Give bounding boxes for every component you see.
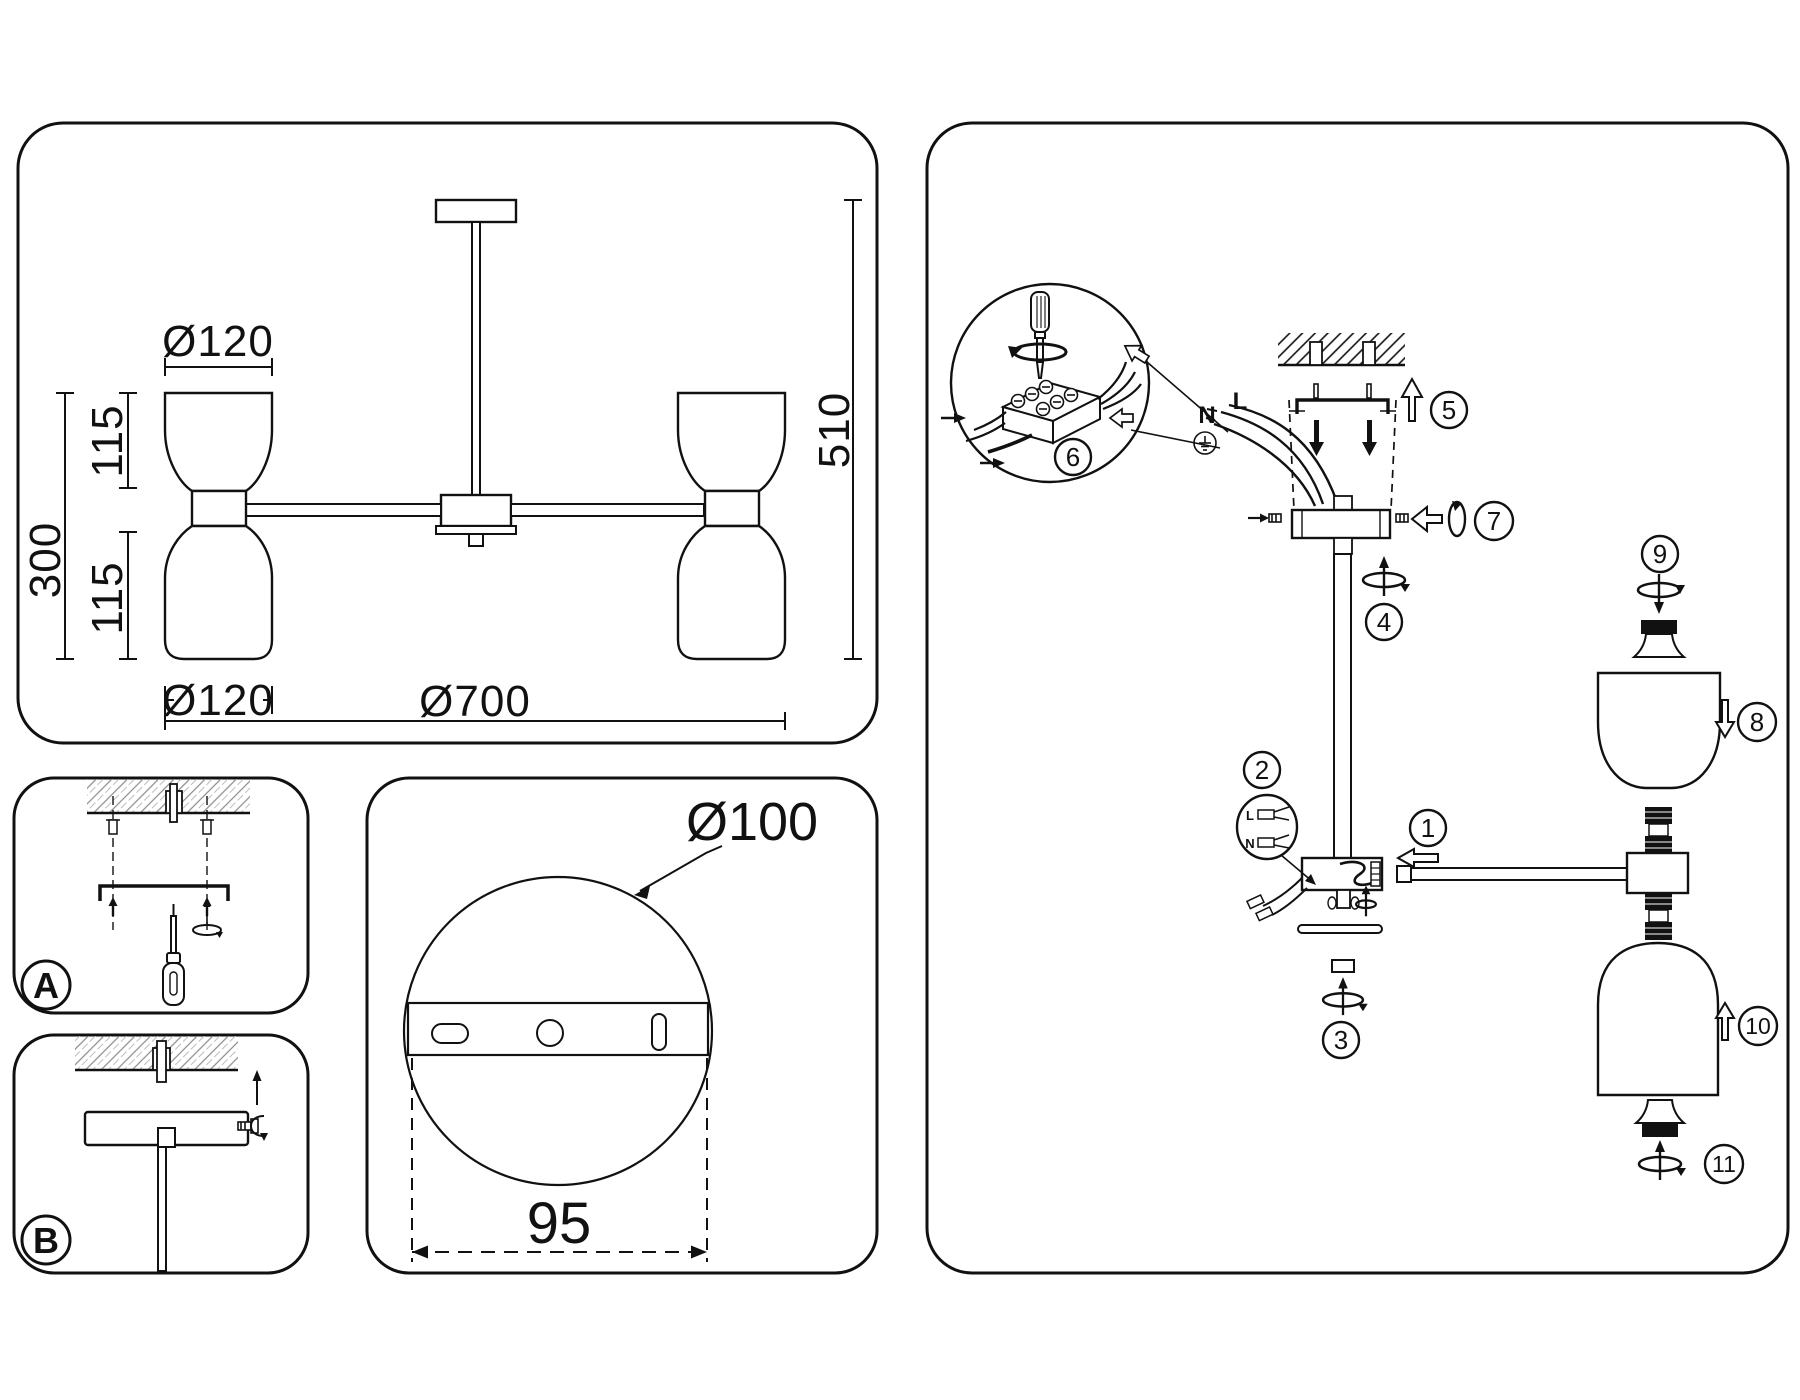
step-5-number: 5 xyxy=(1442,395,1456,425)
wire-neutral-label: N xyxy=(1198,402,1215,429)
central-hub xyxy=(441,495,511,526)
dim-shade-bottom-label: Ø120 xyxy=(162,676,274,725)
threaded-nipple-upper xyxy=(1645,807,1672,853)
step-1-number: 1 xyxy=(1421,813,1435,843)
socket-skirt-upper xyxy=(1634,634,1684,657)
hub-stub xyxy=(1337,890,1350,908)
hub-lip xyxy=(436,526,516,534)
terminal-callout: 6 xyxy=(941,284,1228,482)
mounting-bracket xyxy=(100,886,228,901)
panel-assembly: 6 N L xyxy=(927,123,1788,1273)
connector-live-label: L xyxy=(1246,808,1254,823)
arm-rod xyxy=(1411,868,1627,880)
lock-nut xyxy=(1332,960,1354,972)
socket-skirt-lower xyxy=(1636,1100,1684,1123)
instruction-sheet: Ø120 115 115 300 Ø120 xyxy=(0,0,1800,1400)
rotate-icon-step9 xyxy=(1638,574,1685,614)
arm-right xyxy=(511,504,704,516)
lamp-right xyxy=(678,393,785,659)
bracket-screws xyxy=(109,897,212,916)
diagram-canvas: Ø120 115 115 300 Ø120 xyxy=(0,0,1800,1400)
hub-nub xyxy=(469,534,483,546)
lower-shade-group xyxy=(1598,943,1734,1180)
step-2-number: 2 xyxy=(1255,755,1269,785)
screw-rotate-icon xyxy=(193,899,223,938)
socket-ring-upper xyxy=(1641,620,1677,634)
canopy-assembly xyxy=(1248,496,1465,554)
screwdriver-icon xyxy=(163,904,184,1005)
canopy-screws xyxy=(1309,420,1377,456)
dim-115-lower-label: 115 xyxy=(83,561,132,634)
dim-100-leader xyxy=(634,846,722,899)
dim-100-label: Ø100 xyxy=(686,792,818,852)
ceiling-plate xyxy=(436,200,516,222)
lamp-left xyxy=(165,393,272,659)
stem-rod xyxy=(472,222,480,495)
insert-arrow xyxy=(1412,507,1442,531)
pilot-pin xyxy=(170,784,177,822)
step-3-number: 3 xyxy=(1334,1025,1348,1055)
slot-vertical xyxy=(652,1014,666,1050)
canopy-nut xyxy=(1334,538,1352,554)
step-9-number: 9 xyxy=(1653,539,1667,569)
dim-300-label: 300 xyxy=(21,522,70,598)
slot-horizontal xyxy=(432,1024,468,1043)
arm-left xyxy=(246,504,441,516)
hub-exit-wire xyxy=(1272,888,1307,915)
wall-anchors xyxy=(106,820,214,834)
connector-neutral-label: N xyxy=(1245,836,1254,851)
panel-canopy-detail: 95 Ø100 xyxy=(367,778,877,1273)
rotate-icon-step3 xyxy=(1323,977,1368,1015)
socket-ring-lower xyxy=(1642,1123,1678,1137)
hanger-stud xyxy=(157,1041,166,1082)
bracket-assembly xyxy=(1289,379,1422,510)
shade-dome-lower xyxy=(1598,943,1718,1095)
stem-rod xyxy=(158,1147,166,1271)
rod-socket xyxy=(158,1128,175,1147)
step-8-number: 8 xyxy=(1750,707,1764,737)
canopy-body xyxy=(1292,510,1390,538)
dim-shade-top-label: Ø120 xyxy=(162,317,274,366)
chandelier-front-view xyxy=(165,200,785,659)
rotate-icon-step11 xyxy=(1639,1140,1686,1180)
wire-live-label: L xyxy=(1233,388,1248,415)
dim-95-label: 95 xyxy=(527,1191,592,1256)
step-4-number: 4 xyxy=(1377,607,1391,637)
dim-115-upper-label: 115 xyxy=(83,404,132,477)
cover-plate xyxy=(1298,925,1382,933)
step-6-number: 6 xyxy=(1066,442,1080,472)
dim-700-label: Ø700 xyxy=(419,677,531,726)
upper-shade-group xyxy=(1598,574,1734,788)
arm-assembly xyxy=(1397,807,1688,940)
strain-relief xyxy=(1334,496,1352,510)
panel-step-a: A xyxy=(14,778,308,1013)
rotate-icon xyxy=(1449,501,1465,536)
step-7-number: 7 xyxy=(1487,506,1501,536)
step-11-number: 11 xyxy=(1712,1151,1736,1177)
hub-exit-wire xyxy=(1263,878,1302,906)
up-arrow xyxy=(1402,379,1422,421)
hub-assembly xyxy=(1247,858,1382,921)
rotate-icon-step4 xyxy=(1363,556,1410,596)
lift-arrow xyxy=(253,1070,262,1105)
threaded-nipple-lower xyxy=(1645,893,1672,940)
stem-rod xyxy=(1334,554,1351,858)
panel-step-b: B xyxy=(14,1035,308,1273)
step-b-letter: B xyxy=(33,1220,59,1261)
step-a-letter: A xyxy=(33,965,59,1006)
dim-510-label: 510 xyxy=(810,392,859,468)
insert-arrow-step1 xyxy=(1398,849,1438,867)
junction-block xyxy=(1627,853,1688,893)
panel-dimensions: Ø120 115 115 300 Ø120 xyxy=(18,123,877,743)
step-10-number: 10 xyxy=(1745,1013,1771,1039)
center-hole xyxy=(537,1020,563,1046)
shade-cup-upper xyxy=(1598,673,1720,788)
ceiling xyxy=(1278,333,1405,365)
